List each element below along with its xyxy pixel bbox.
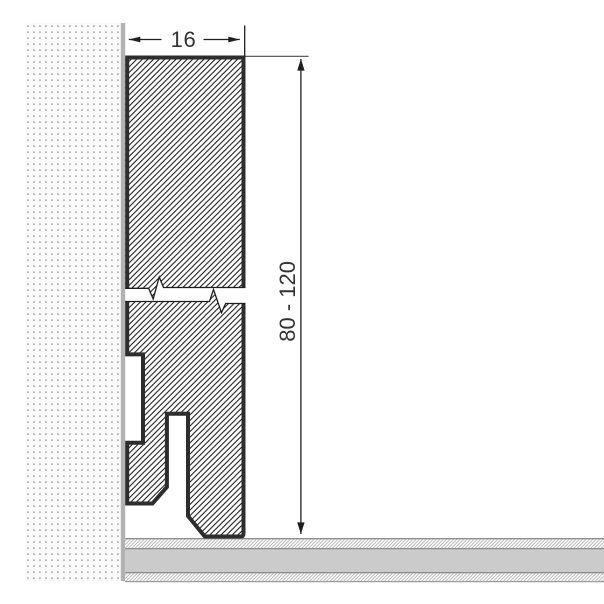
svg-text:16: 16 <box>171 27 197 52</box>
svg-text:80 - 120: 80 - 120 <box>275 261 300 342</box>
